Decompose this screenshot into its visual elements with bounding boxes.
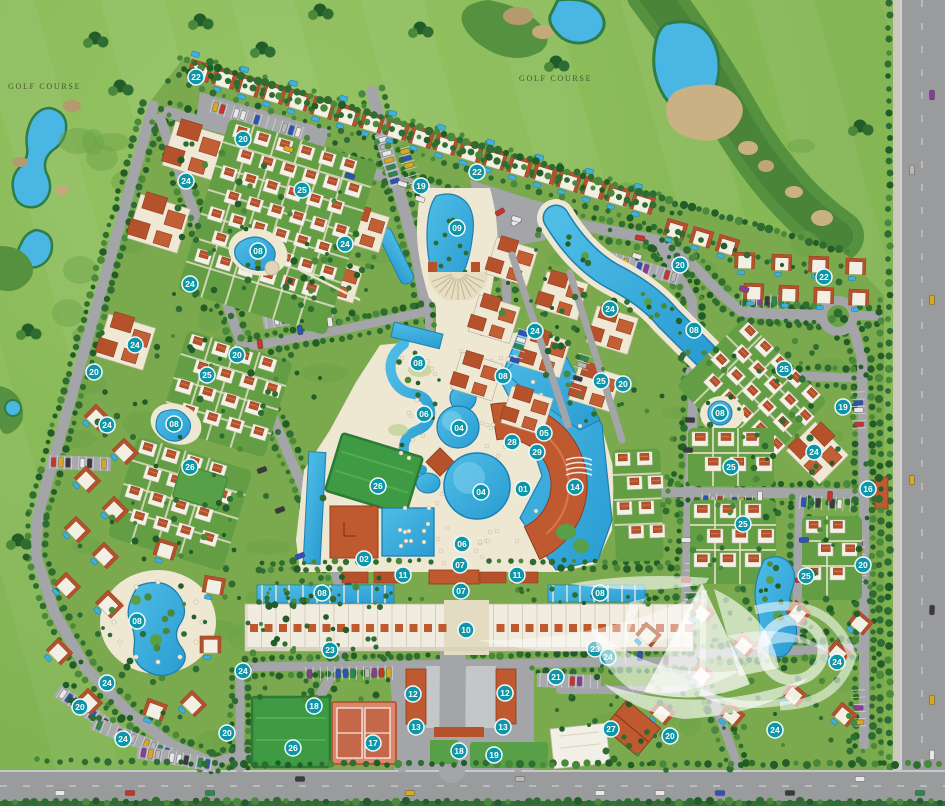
svg-text:22: 22	[819, 272, 829, 282]
svg-text:25: 25	[726, 462, 736, 472]
svg-text:20: 20	[665, 731, 675, 741]
svg-text:08: 08	[413, 358, 423, 368]
svg-text:25: 25	[202, 370, 212, 380]
svg-text:19: 19	[416, 181, 426, 191]
svg-text:06: 06	[419, 409, 429, 419]
svg-text:04: 04	[476, 487, 486, 497]
svg-text:14: 14	[570, 482, 580, 492]
svg-text:07: 07	[456, 586, 466, 596]
svg-text:24: 24	[181, 176, 191, 186]
svg-text:08: 08	[253, 246, 263, 256]
svg-text:20: 20	[222, 728, 232, 738]
svg-text:20: 20	[858, 560, 868, 570]
svg-text:25: 25	[738, 519, 748, 529]
svg-text:24: 24	[340, 239, 350, 249]
svg-text:07: 07	[455, 560, 465, 570]
svg-text:05: 05	[539, 428, 549, 438]
svg-text:25: 25	[297, 185, 307, 195]
svg-text:27: 27	[606, 724, 616, 734]
svg-text:24: 24	[102, 678, 112, 688]
svg-text:19: 19	[838, 402, 848, 412]
svg-text:08: 08	[132, 616, 142, 626]
svg-text:24: 24	[832, 657, 842, 667]
svg-text:11: 11	[399, 570, 408, 580]
svg-text:18: 18	[454, 746, 464, 756]
svg-text:09: 09	[452, 223, 462, 233]
svg-text:25: 25	[801, 571, 811, 581]
svg-text:08: 08	[715, 408, 725, 418]
svg-text:10: 10	[461, 625, 471, 635]
svg-text:11: 11	[513, 570, 522, 580]
svg-text:20: 20	[75, 702, 85, 712]
svg-text:06: 06	[457, 539, 467, 549]
svg-text:13: 13	[411, 722, 421, 732]
svg-text:12: 12	[500, 688, 510, 698]
svg-text:08: 08	[317, 588, 327, 598]
svg-text:GOLF COURSE: GOLF COURSE	[519, 74, 592, 83]
svg-text:16: 16	[863, 484, 873, 494]
svg-text:20: 20	[89, 367, 99, 377]
svg-text:22: 22	[191, 72, 201, 82]
svg-text:23: 23	[325, 645, 335, 655]
svg-text:20: 20	[618, 379, 628, 389]
svg-text:24: 24	[605, 304, 615, 314]
svg-text:21: 21	[551, 672, 561, 682]
svg-text:08: 08	[498, 371, 508, 381]
svg-text:24: 24	[185, 279, 195, 289]
svg-text:19: 19	[489, 750, 499, 760]
svg-text:GOLF COURSE: GOLF COURSE	[8, 82, 81, 91]
svg-text:20: 20	[238, 134, 248, 144]
svg-text:22: 22	[472, 167, 482, 177]
svg-text:24: 24	[809, 447, 819, 457]
svg-text:28: 28	[507, 437, 517, 447]
svg-text:18: 18	[309, 701, 319, 711]
svg-text:26: 26	[288, 743, 298, 753]
svg-text:24: 24	[130, 340, 140, 350]
svg-text:24: 24	[530, 326, 540, 336]
svg-text:24: 24	[102, 420, 112, 430]
svg-text:04: 04	[454, 423, 464, 433]
svg-text:24: 24	[118, 734, 128, 744]
svg-text:13: 13	[498, 722, 508, 732]
svg-text:24: 24	[770, 725, 780, 735]
svg-text:12: 12	[408, 689, 418, 699]
svg-text:25: 25	[779, 364, 789, 374]
svg-text:20: 20	[232, 350, 242, 360]
svg-text:29: 29	[532, 447, 542, 457]
svg-text:01: 01	[518, 484, 528, 494]
svg-text:02: 02	[359, 554, 369, 564]
svg-text:08: 08	[689, 325, 699, 335]
svg-text:26: 26	[185, 462, 195, 472]
svg-text:08: 08	[595, 588, 605, 598]
svg-text:08: 08	[169, 419, 179, 429]
svg-text:20: 20	[675, 260, 685, 270]
svg-text:26: 26	[373, 481, 383, 491]
svg-text:25: 25	[596, 376, 606, 386]
svg-text:24: 24	[238, 666, 248, 676]
svg-text:17: 17	[368, 738, 378, 748]
